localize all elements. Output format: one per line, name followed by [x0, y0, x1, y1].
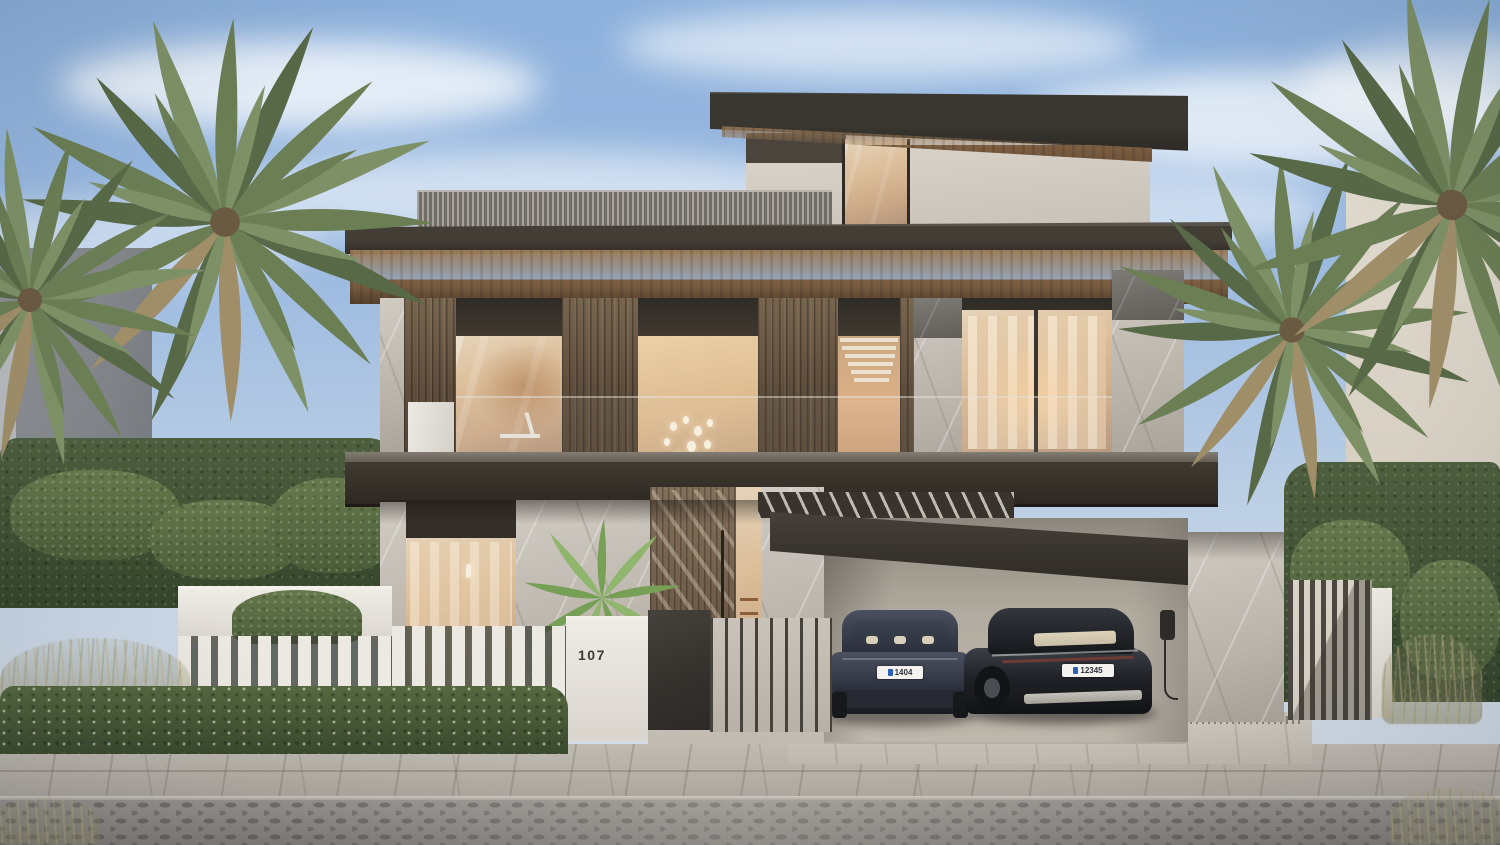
villa-exterior-render: 1404 12345	[0, 0, 1500, 845]
vignette	[0, 0, 1500, 845]
